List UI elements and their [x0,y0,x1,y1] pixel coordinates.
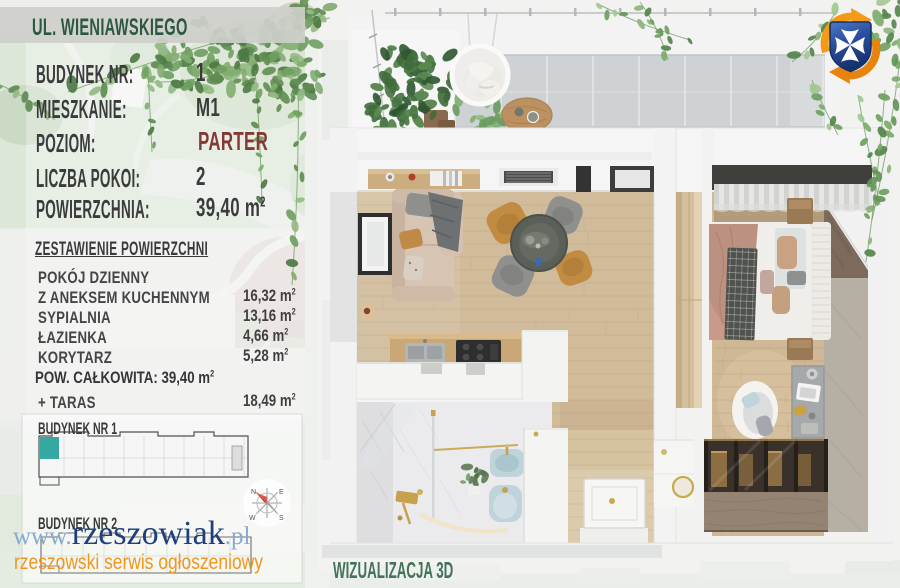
svg-text:S: S [279,515,284,522]
svg-text:E: E [279,489,284,496]
svg-text:N: N [251,489,256,496]
